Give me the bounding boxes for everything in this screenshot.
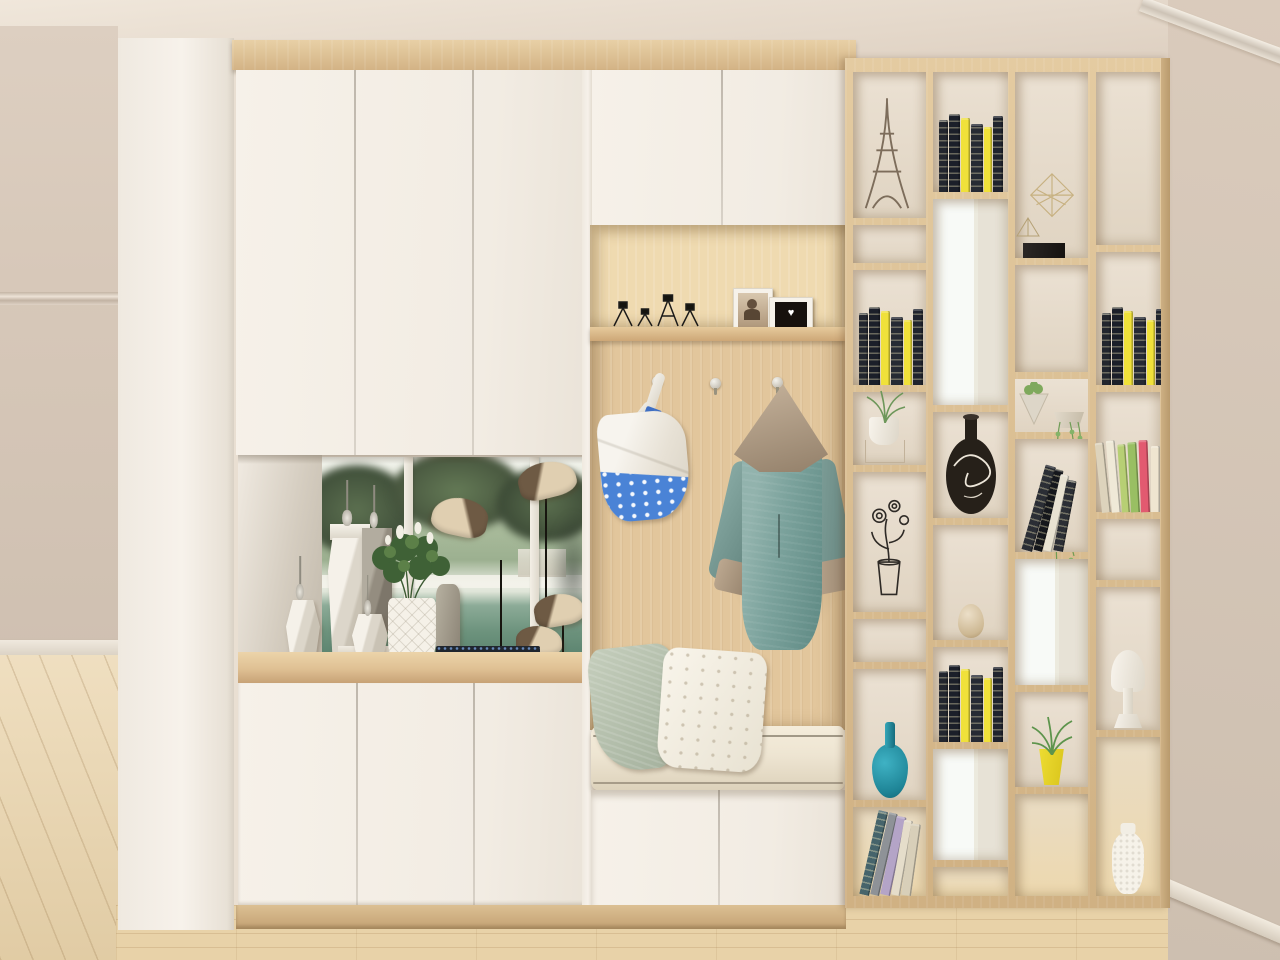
shelf-cubby <box>933 199 1008 405</box>
shelf-cubby <box>853 619 926 662</box>
shelf-cubby <box>1015 379 1088 432</box>
shelf-cubby <box>1096 72 1160 245</box>
potted-plant-on-stand <box>853 392 926 465</box>
niche-shelf-board <box>590 327 845 341</box>
shelf-cubby <box>1015 265 1088 372</box>
shelf-cubby <box>853 270 926 385</box>
shelf-cubby <box>853 807 926 896</box>
black-yellow-books <box>933 72 1008 192</box>
leaning-bw-books <box>1015 439 1088 552</box>
shelf-cubby <box>933 867 1008 896</box>
upper-cabinet-doors <box>590 70 855 225</box>
yellow-planter-plant <box>1015 692 1088 787</box>
wood-floor <box>0 655 120 960</box>
black-yellow-books <box>1096 252 1160 385</box>
interior-render: ♥ <box>0 0 1280 960</box>
shelf-cubby <box>853 72 926 218</box>
chair-rail-molding <box>0 292 118 305</box>
bookshelf-side-edge <box>1161 58 1170 908</box>
left-wall <box>0 26 118 658</box>
shelf-cubby <box>1015 794 1088 896</box>
spire-bottle <box>294 556 306 602</box>
shelf-cubby <box>933 72 1008 192</box>
bookshelf-divider <box>845 58 1170 908</box>
leaning-books <box>853 807 926 896</box>
succulent-and-vine <box>1015 379 1088 432</box>
pillow-dotted <box>656 647 768 774</box>
cabinet-plinth <box>236 905 846 929</box>
door-seam <box>721 70 723 225</box>
shelf-cubby <box>933 525 1008 640</box>
door-seam <box>473 683 475 905</box>
shelf-cubby <box>853 472 926 612</box>
black-yellow-books <box>933 647 1008 742</box>
shelf-cubby <box>1096 392 1160 512</box>
lower-cabinet-doors <box>238 683 590 905</box>
wire-candleholders <box>612 294 722 328</box>
shelf-cubby <box>853 669 926 800</box>
black-yellow-books <box>853 270 926 385</box>
photo-frame-portrait <box>733 288 773 332</box>
colorful-books-row <box>1096 392 1160 512</box>
shelf-cubby <box>853 225 926 263</box>
wire-flower-sculpture <box>853 472 926 612</box>
right-wall <box>1168 0 1280 960</box>
cabinet-top-trim <box>232 40 856 70</box>
white-pedestal-vase <box>1096 587 1160 730</box>
bird-stick <box>500 560 502 652</box>
shelf-cubby <box>1096 519 1160 580</box>
niche-shadow <box>238 455 582 464</box>
cabinet-side-panel <box>118 38 234 930</box>
door-seam <box>718 790 720 905</box>
hooded-coat <box>716 384 850 654</box>
eiffel-tower-figurine <box>853 72 926 218</box>
wireframe-sculpture <box>1015 72 1088 258</box>
stone-egg <box>933 525 1008 640</box>
shelf-cubby <box>933 412 1008 518</box>
black-swirl-vase <box>933 412 1008 518</box>
shelf-cubby <box>1015 559 1088 685</box>
door-seam <box>354 70 356 455</box>
shelf-cubby <box>1015 692 1088 787</box>
door-seam <box>472 70 474 455</box>
heart-icon: ♥ <box>788 307 795 319</box>
shelf-cubby <box>1096 737 1160 896</box>
shelf-cubby <box>1015 439 1088 552</box>
door-seam <box>356 683 358 905</box>
shelf-cubby <box>853 392 926 465</box>
tall-cabinet-doors <box>236 70 590 455</box>
shelf-cubby <box>933 749 1008 860</box>
teal-vase <box>853 669 926 800</box>
white-textured-vase <box>1096 737 1160 896</box>
shelf-cubby <box>1096 252 1160 385</box>
bench-base-doors <box>591 790 845 905</box>
shelf-cubby <box>933 647 1008 742</box>
niche-wood-counter <box>238 652 582 683</box>
spire-bottle <box>340 480 354 528</box>
shelf-cubby <box>1015 72 1088 258</box>
shelf-cubby <box>1096 587 1160 730</box>
tote-bag <box>596 366 696 526</box>
